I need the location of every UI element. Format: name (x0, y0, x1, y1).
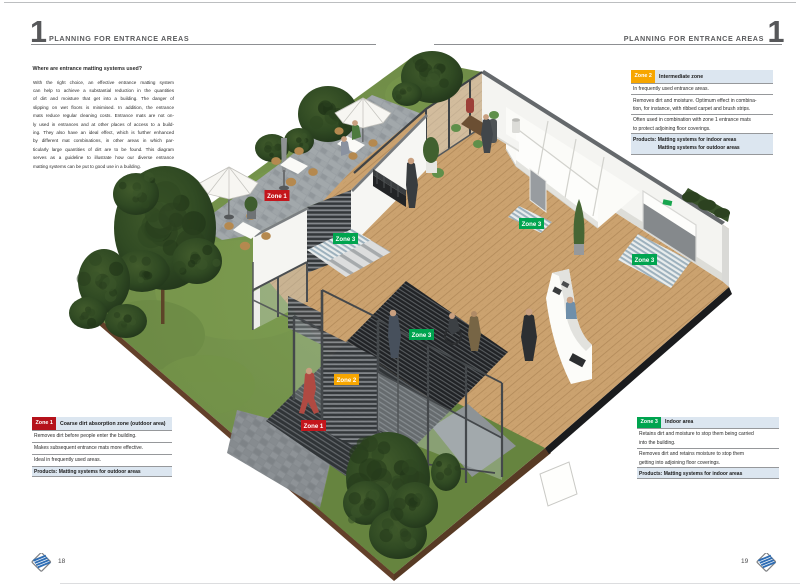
svg-text:Zone 3: Zone 3 (336, 236, 356, 243)
svg-text:Zone 1: Zone 1 (267, 193, 287, 200)
svg-text:Zone 3: Zone 3 (412, 332, 432, 339)
svg-text:Zone 3: Zone 3 (635, 257, 655, 264)
svg-text:Zone 1: Zone 1 (304, 423, 324, 430)
svg-text:Zone 3: Zone 3 (522, 221, 542, 228)
svg-text:Zone 2: Zone 2 (337, 377, 357, 384)
